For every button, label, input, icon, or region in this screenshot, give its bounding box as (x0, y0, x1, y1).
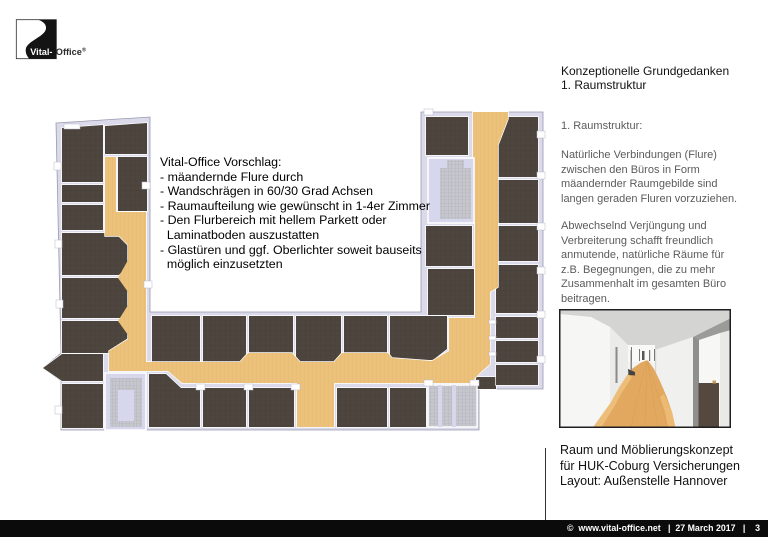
svg-text:Vital-Office®: Vital-Office® (30, 47, 87, 58)
